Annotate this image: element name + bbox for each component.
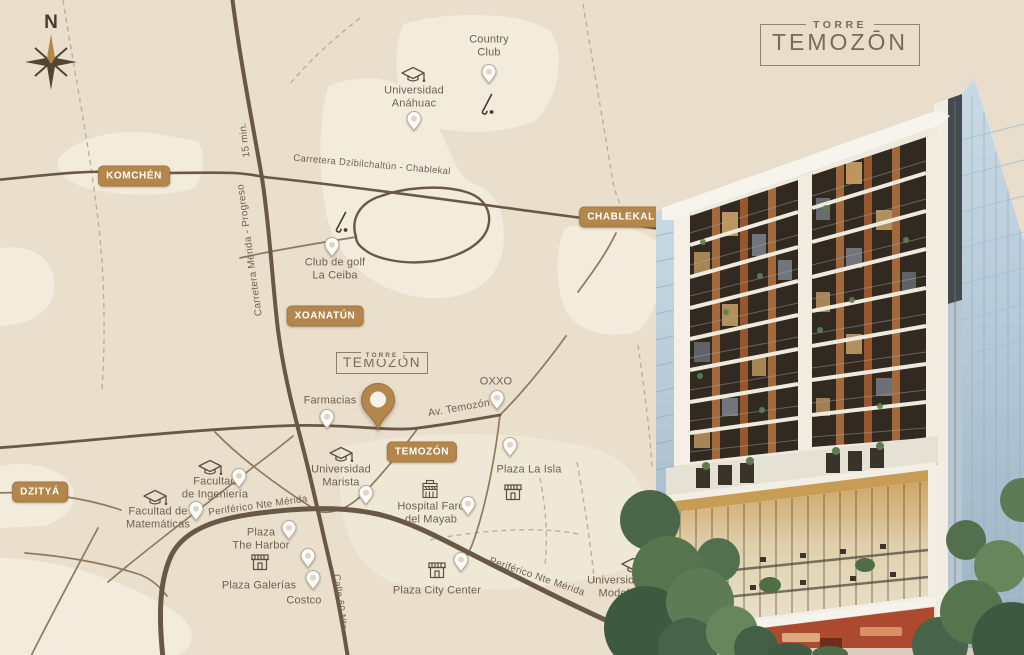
map-flyer: N 15 min. Carretera Mérida - Progreso Ca…	[0, 0, 1024, 655]
building-rendering	[0, 0, 1024, 655]
hero-logo-torre: TORRE	[761, 18, 919, 31]
hero-logo-name: TEMOZŌN	[761, 29, 919, 56]
hero-project-logo: TORRE TEMOZŌN	[760, 24, 920, 66]
